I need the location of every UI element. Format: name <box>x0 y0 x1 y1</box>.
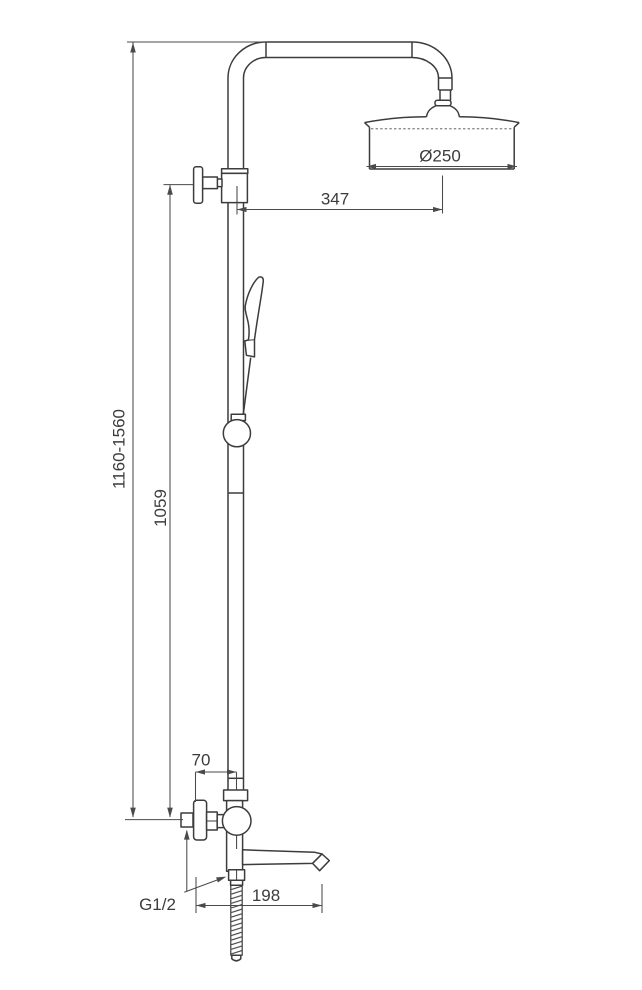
head-diameter-label: Ø250 <box>419 147 461 166</box>
dim-spout-projection: 198 <box>196 877 322 913</box>
diverter-assembly <box>194 167 248 203</box>
hand-shower-wand <box>245 277 264 357</box>
dimensions: 1160-1560 1059 347 Ø250 <box>110 42 518 914</box>
technical-drawing-page: 1160-1560 1059 347 Ø250 <box>0 0 642 990</box>
overall-height-label: 1160-1560 <box>110 409 129 489</box>
valve-collar <box>224 790 248 801</box>
hand-shower-holder-arm <box>243 358 251 415</box>
bath-spout <box>243 850 330 871</box>
escutcheon <box>194 800 207 840</box>
slider-knob <box>223 420 250 447</box>
spout-tube <box>243 850 322 865</box>
shower-arm <box>228 42 452 78</box>
connection-thread-label: G1/2 <box>139 895 176 914</box>
diverter-stem <box>203 177 218 189</box>
arm-projection-label: 347 <box>321 190 349 209</box>
shower-hose <box>229 870 245 961</box>
dim-head-diameter: Ø250 <box>367 147 518 170</box>
dim-column-height: 1059 <box>151 185 193 818</box>
thread-callout: G1/2 <box>139 830 226 914</box>
diverter-knob <box>194 167 203 203</box>
shower-head-connector <box>427 78 460 117</box>
spout-projection-label: 198 <box>252 886 280 905</box>
tee-body <box>222 173 248 202</box>
handle-offset-label: 70 <box>192 751 211 770</box>
mixer-knob <box>222 807 251 836</box>
hose-end <box>232 955 241 961</box>
column-height-label: 1059 <box>151 489 170 527</box>
ball-joint <box>435 100 451 106</box>
column-figure <box>181 42 519 961</box>
dim-arm-projection: 347 <box>237 176 443 215</box>
hand-shower <box>243 277 263 415</box>
shower-column-technical-drawing: 1160-1560 1059 347 Ø250 <box>0 0 642 990</box>
hose-corrugation <box>231 885 242 955</box>
